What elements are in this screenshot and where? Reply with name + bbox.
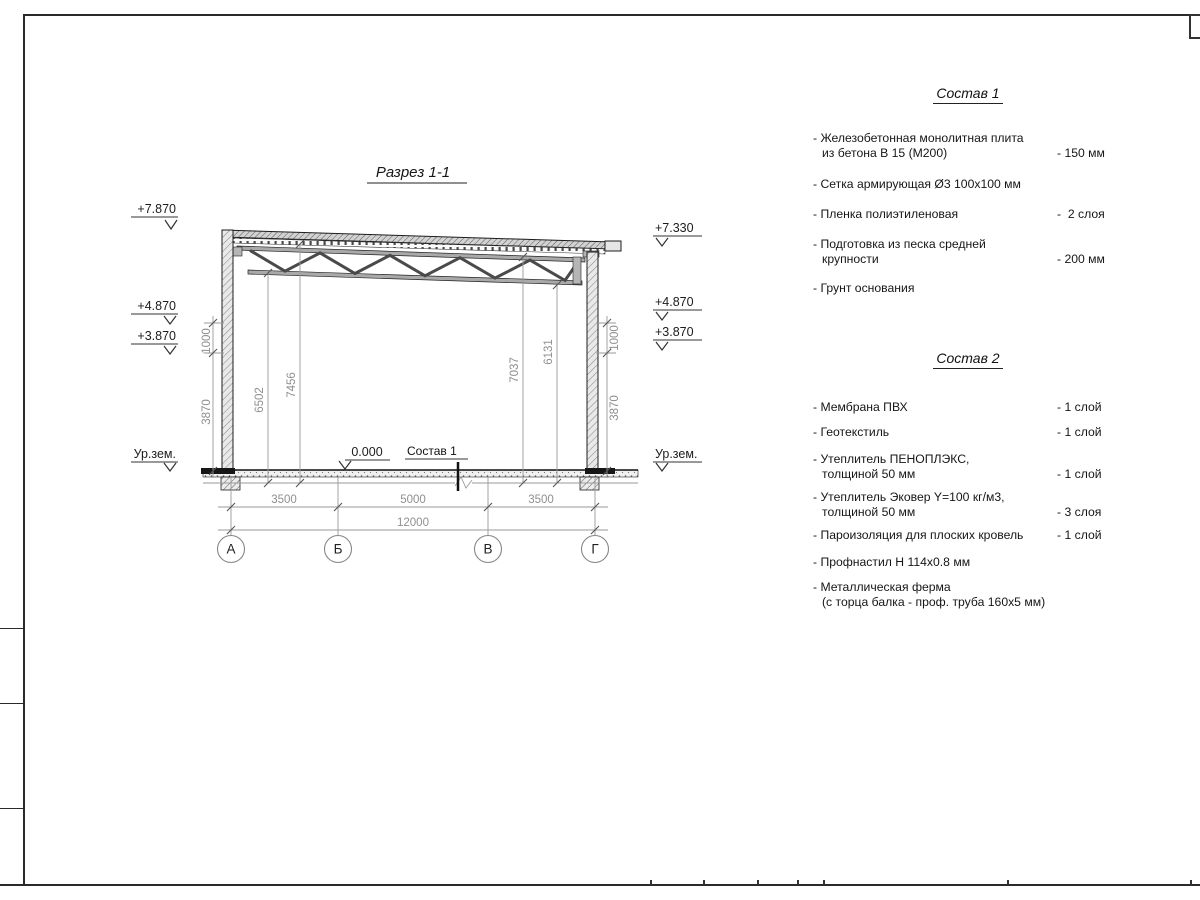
dim-left-1000: 1000: [201, 328, 213, 354]
item-value: - 1 слой: [1057, 528, 1123, 543]
item-text: - Пленка полиэтиленовая: [813, 207, 1057, 222]
item-value: - 200 мм: [1057, 252, 1123, 267]
column-left: [222, 230, 233, 471]
axis-label-a: А: [226, 542, 235, 557]
list-item: - Подготовка из песка среднейкрупности -…: [813, 237, 1123, 267]
dim-height-7456: 7456: [286, 372, 298, 398]
elevation-right-3870: +3.870: [655, 325, 694, 339]
item-value: - 150 мм: [1057, 146, 1123, 161]
item-value: - 2 слоя: [1057, 207, 1123, 222]
truss-left-gusset: [233, 247, 242, 256]
composition-2-title: Состав 2: [813, 350, 1123, 369]
list-item: - Металлическая ферма(с торца балка - пр…: [813, 580, 1123, 610]
margin-cell-divider: [0, 808, 24, 809]
titleblock-tick: [1190, 880, 1192, 885]
item-text: - Подготовка из песка средней: [813, 237, 1057, 252]
item-text: крупности: [813, 252, 1057, 267]
item-value: - 3 слоя: [1057, 505, 1123, 520]
titleblock-tick: [757, 880, 759, 885]
truss-right-post: [573, 257, 581, 284]
section-drawing: Разрез 1-1 3500 5000 3500 12000 1000: [0, 0, 760, 660]
dim-total: 12000: [397, 517, 429, 529]
item-text: - Железобетонная монолитная плита: [813, 131, 1057, 146]
zero-level-mark: 0.000: [351, 445, 382, 459]
item-value: - 1 слой: [1057, 400, 1123, 415]
titleblock-tick: [823, 880, 825, 885]
dim-right-3870: 3870: [609, 395, 621, 421]
ground-label-left: Ур.зем.: [134, 447, 176, 461]
frame-border-bottom: [0, 884, 1200, 886]
dim-height-7037: 7037: [509, 357, 521, 383]
composition-1-title: Состав 1: [813, 85, 1123, 104]
dim-right-1000: 1000: [609, 325, 621, 351]
item-value: - 1 слой: [1057, 467, 1123, 482]
item-value: - 1 слой: [1057, 425, 1123, 440]
titleblock-tick: [703, 880, 705, 885]
dim-span-v-g: 3500: [528, 494, 554, 506]
titleblock-tick: [797, 880, 799, 885]
dim-span-b-v: 5000: [400, 494, 426, 506]
drawing-sheet: Разрез 1-1 3500 5000 3500 12000 1000: [0, 0, 1200, 900]
item-text: - Сетка армирующая Ø3 100x100 мм: [813, 177, 1057, 192]
elevation-left-3870: +3.870: [137, 329, 176, 343]
list-item: - Утеплитель Эковер Y=100 кг/м3,толщиной…: [813, 490, 1123, 520]
list-item: - Профнастил Н 114x0.8 мм: [813, 555, 1123, 570]
axis-label-v: В: [483, 542, 492, 557]
list-item: - Пароизоляция для плоских кровель - 1 с…: [813, 528, 1123, 543]
dim-left-3870: 3870: [201, 399, 213, 425]
item-text: - Утеплитель ПЕНОПЛЭКС,: [813, 452, 1057, 467]
item-text: из бетона В 15 (М200): [813, 146, 1057, 161]
elevation-arrows-right: [656, 238, 668, 471]
item-text: - Металлическая ферма: [813, 580, 1057, 595]
ground-label-right: Ур.зем.: [655, 447, 697, 461]
elevation-left-4870: +4.870: [137, 299, 176, 313]
dim-height-6131: 6131: [543, 339, 555, 365]
item-text: - Профнастил Н 114x0.8 мм: [813, 555, 1057, 570]
elevation-right-7330: +7.330: [655, 221, 694, 235]
list-item: - Железобетонная монолитная плитаиз бето…: [813, 131, 1123, 161]
frame-corner-box: [1189, 14, 1200, 39]
roof-edge-cap: [605, 241, 621, 251]
foundation-right: [580, 477, 599, 490]
dim-span-a-b: 3500: [271, 494, 297, 506]
drawing-title: Разрез 1-1: [376, 164, 450, 181]
ground-bar-right: [585, 468, 615, 474]
zero-mark-arrow: [339, 461, 351, 469]
list-item: - Мембрана ПВХ - 1 слой: [813, 400, 1123, 415]
list-item: - Утеплитель ПЕНОПЛЭКС,толщиной 50 мм - …: [813, 452, 1123, 482]
list-item: - Сетка армирующая Ø3 100x100 мм: [813, 177, 1123, 192]
item-text: (с торца балка - проф. труба 160x5 мм): [813, 595, 1057, 610]
item-text: - Мембрана ПВХ: [813, 400, 1057, 415]
item-text: - Утеплитель Эковер Y=100 кг/м3,: [813, 490, 1057, 505]
truss-bottom-chord: [248, 270, 582, 285]
floor-composition-ref: Состав 1: [407, 444, 457, 458]
item-text: толщиной 50 мм: [813, 505, 1057, 520]
ground-bar-left: [201, 468, 235, 474]
axis-label-b: Б: [334, 542, 343, 557]
dimension-lines: [203, 244, 638, 536]
dim-height-6502: 6502: [254, 387, 266, 413]
elevation-left-7870: +7.870: [137, 202, 176, 216]
item-text: - Грунт основания: [813, 281, 1057, 296]
elevation-arrows-left: [164, 220, 177, 471]
axis-label-g: Г: [591, 542, 599, 557]
composition-2-list: Состав 2 - Мембрана ПВХ - 1 слой - Геоте…: [813, 350, 1123, 610]
list-item: - Грунт основания: [813, 281, 1123, 296]
margin-cell-divider: [0, 703, 24, 704]
item-text: - Пароизоляция для плоских кровель: [813, 528, 1057, 543]
list-item: - Геотекстиль - 1 слой: [813, 425, 1123, 440]
elevation-underlines-right: [653, 236, 702, 462]
elevation-right-4870: +4.870: [655, 295, 694, 309]
foundation-left: [221, 477, 240, 490]
column-right: [587, 252, 598, 471]
item-text: - Геотекстиль: [813, 425, 1057, 440]
list-item: - Пленка полиэтиленовая - 2 слоя: [813, 207, 1123, 222]
composition-1-list: Состав 1 - Железобетонная монолитная пли…: [813, 85, 1123, 296]
titleblock-tick: [650, 880, 652, 885]
titleblock-tick: [1007, 880, 1009, 885]
item-text: толщиной 50 мм: [813, 467, 1057, 482]
